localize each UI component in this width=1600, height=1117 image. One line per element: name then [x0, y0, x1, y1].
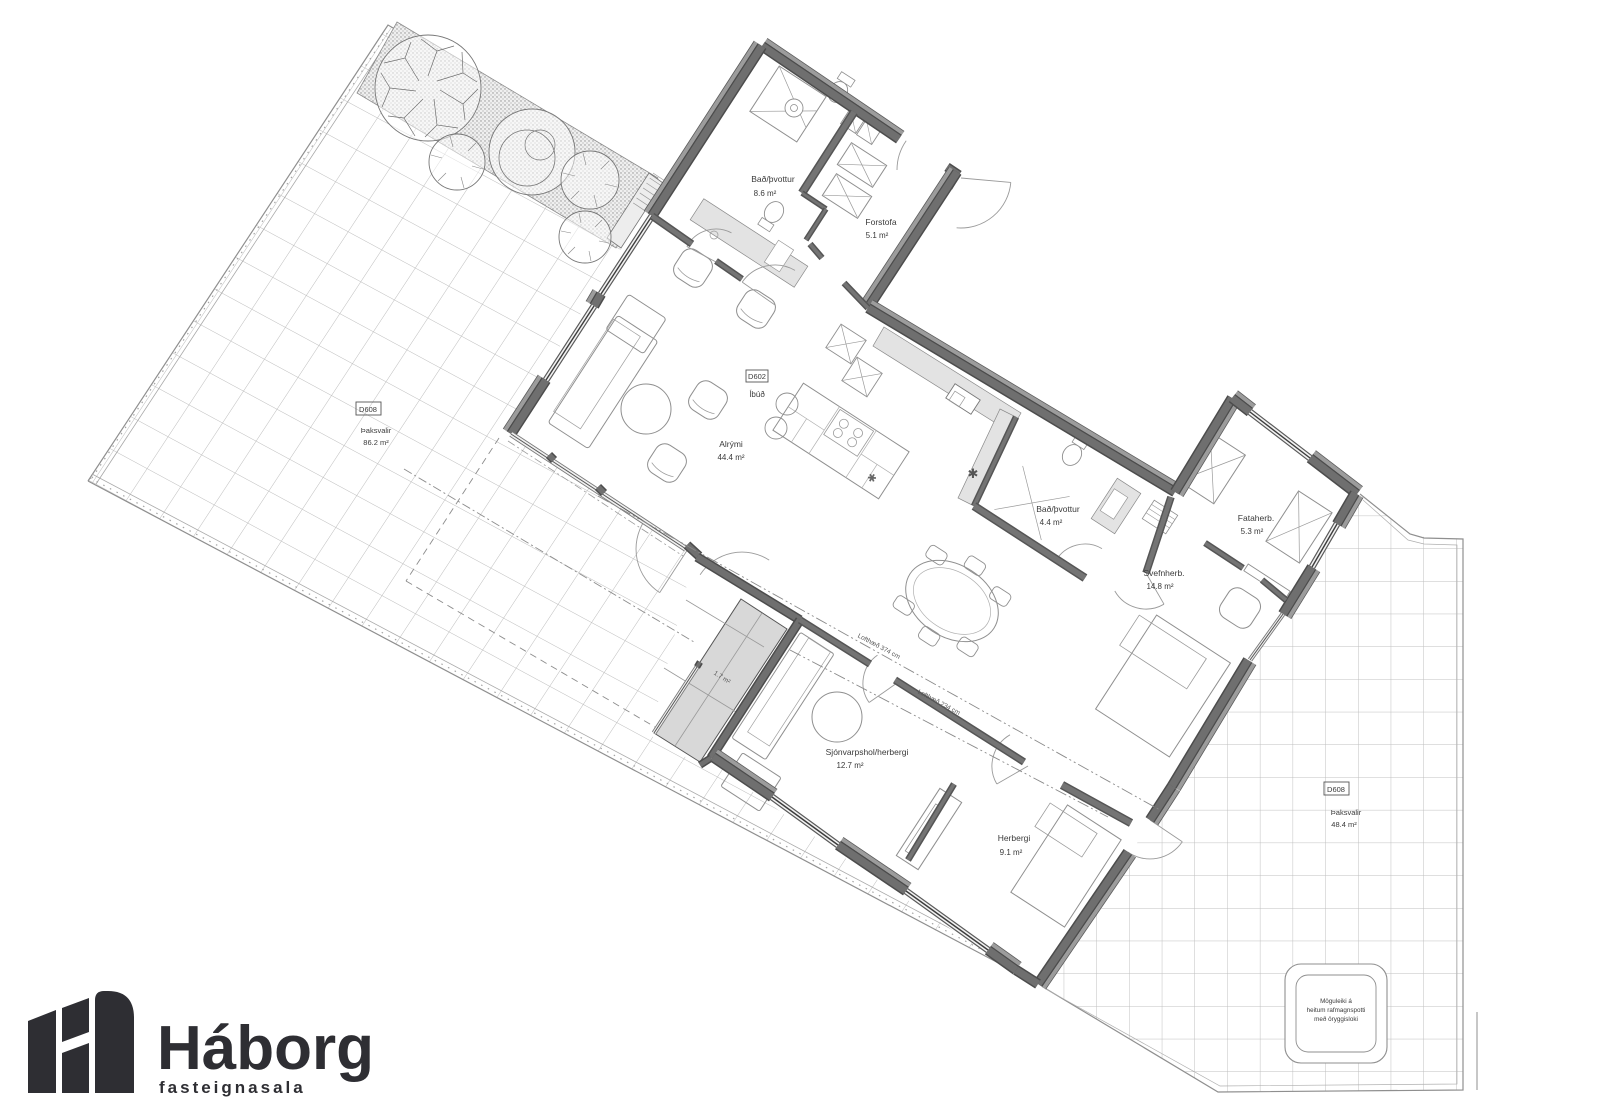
svg-text:5.1 m²: 5.1 m²	[866, 231, 889, 240]
svg-text:8.6 m²: 8.6 m²	[754, 189, 777, 198]
svg-text:44.4 m²: 44.4 m²	[717, 453, 744, 462]
svg-text:Bað/þvottur: Bað/þvottur	[1036, 504, 1080, 514]
svg-text:Fataherb.: Fataherb.	[1238, 513, 1274, 523]
svg-text:Alrými: Alrými	[719, 439, 743, 449]
svg-text:D608: D608	[1327, 785, 1345, 794]
svg-text:með öryggisloki: með öryggisloki	[1314, 1015, 1358, 1023]
svg-text:fasteignasala: fasteignasala	[159, 1078, 306, 1097]
svg-text:✱: ✱	[968, 466, 979, 481]
svg-text:Þaksvalir: Þaksvalir	[1331, 808, 1362, 817]
svg-text:14.8 m²: 14.8 m²	[1146, 582, 1173, 591]
svg-text:Bað/þvottur: Bað/þvottur	[751, 174, 795, 184]
svg-text:Svefnherb.: Svefnherb.	[1143, 568, 1184, 578]
svg-text:9.1 m²: 9.1 m²	[1000, 848, 1023, 857]
svg-text:D608: D608	[359, 405, 377, 414]
svg-text:Herbergi: Herbergi	[998, 833, 1031, 843]
svg-text:48.4 m²: 48.4 m²	[1331, 820, 1357, 829]
svg-text:heitum rafmagnspotti: heitum rafmagnspotti	[1307, 1007, 1366, 1014]
svg-text:Íbúð: Íbúð	[749, 390, 765, 399]
svg-text:12.7 m²: 12.7 m²	[836, 761, 863, 770]
svg-text:5.3 m²: 5.3 m²	[1241, 527, 1264, 536]
svg-text:Möguleiki á: Möguleiki á	[1320, 998, 1352, 1005]
svg-text:Forstofa: Forstofa	[865, 217, 896, 227]
svg-text:4.4 m²: 4.4 m²	[1040, 518, 1063, 527]
svg-text:D602: D602	[748, 372, 766, 381]
svg-text:Sjónvarpshol/herbergi: Sjónvarpshol/herbergi	[826, 747, 909, 757]
svg-text:Háborg: Háborg	[157, 1014, 374, 1083]
svg-text:Þaksvalir: Þaksvalir	[361, 426, 392, 435]
svg-text:86.2 m²: 86.2 m²	[363, 438, 389, 447]
